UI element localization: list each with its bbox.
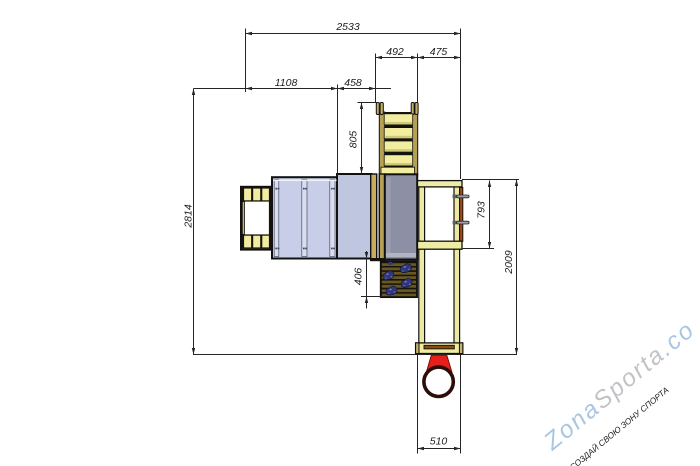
svg-text:805: 805	[348, 131, 360, 149]
svg-text:406: 406	[353, 268, 365, 286]
svg-text:2009: 2009	[503, 250, 515, 275]
svg-text:793: 793	[476, 201, 488, 219]
svg-text:2533: 2533	[335, 21, 360, 33]
svg-text:475: 475	[430, 46, 448, 58]
svg-text:1108: 1108	[275, 77, 298, 89]
svg-text:458: 458	[344, 77, 362, 89]
svg-text:2814: 2814	[183, 204, 195, 229]
svg-text:510: 510	[430, 436, 448, 448]
svg-text:ZonaSporta.co: ZonaSporta.co	[538, 316, 700, 456]
svg-text:492: 492	[386, 46, 404, 58]
